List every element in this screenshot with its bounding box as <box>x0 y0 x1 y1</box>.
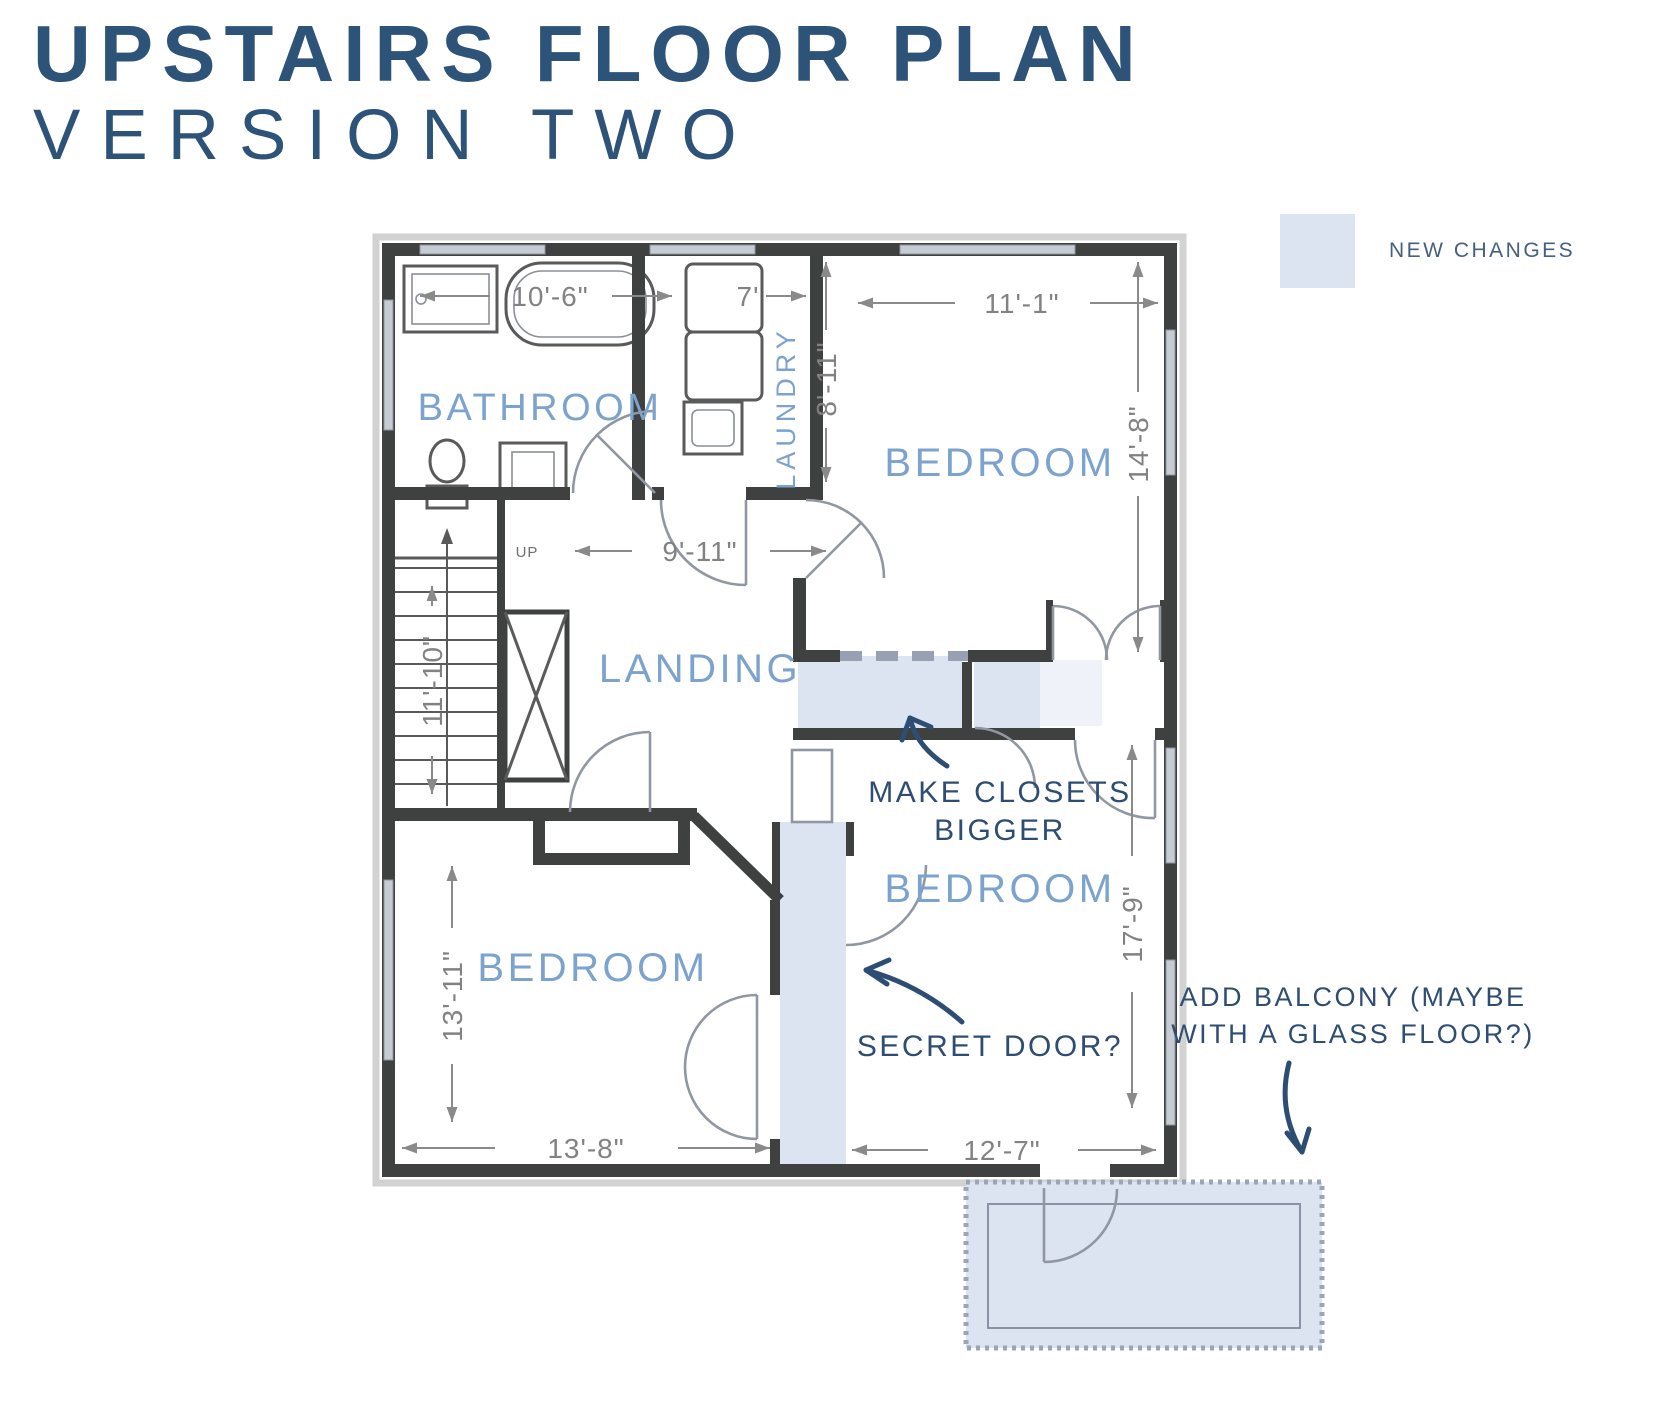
shower-icon <box>404 266 497 332</box>
wall-bath-laundry-divider <box>632 243 645 500</box>
wall-bath-south <box>395 487 570 500</box>
make-closets-note-line1: MAKE CLOSETS <box>868 776 1131 809</box>
wall-passage-left-top <box>772 822 780 902</box>
toilet-icon <box>430 440 464 482</box>
wall-passage-left-bottom <box>770 1139 780 1164</box>
wall-passage-left-mid <box>770 900 780 995</box>
dim-bedroom-tr-width: 11'-1" <box>984 288 1059 319</box>
make-closets-note-line2: BIGGER <box>934 814 1066 847</box>
landing-label: LANDING <box>599 647 801 691</box>
dim-bedroom-bl-depth: 13'-11" <box>437 950 468 1042</box>
dim-bathroom-width: 10'-6" <box>511 281 588 312</box>
bathroom-label: BATHROOM <box>418 387 663 429</box>
wall-passage-right-stub <box>846 822 854 856</box>
wall-landing-closet-right <box>678 821 690 865</box>
floor-plan: UP <box>0 0 1670 1404</box>
highlight-balcony <box>966 1182 1322 1348</box>
dryer-icon <box>686 332 762 400</box>
dim-laundry-width: 7' <box>737 281 760 312</box>
dim-landing-width: 9'-11" <box>662 536 737 567</box>
window <box>384 300 393 430</box>
wall-landing-closet-bottom <box>533 853 690 865</box>
wall-closet-divider <box>962 662 972 728</box>
secret-door-note: SECRET DOOR? <box>857 1030 1123 1063</box>
window <box>650 245 755 254</box>
bedroom-bottom-right-label: BEDROOM <box>884 867 1115 911</box>
window <box>900 245 1075 254</box>
window <box>1166 330 1175 475</box>
wall-outer-bottom-right <box>1110 1164 1177 1177</box>
wall-closet-top-right <box>968 650 1050 662</box>
wall-landing-south <box>395 808 697 821</box>
bedroom-bottom-left-label: BEDROOM <box>477 946 708 990</box>
window <box>384 880 393 1060</box>
highlight-secret-passage <box>780 822 846 1168</box>
dim-laundry-depth: 8'-11" <box>811 341 842 416</box>
wall-closet-bottom <box>793 728 1075 740</box>
add-balcony-note-line2: WITH A GLASS FLOOR?) <box>1171 1019 1535 1049</box>
highlight-closet-2 <box>974 656 1040 728</box>
page: UPSTAIRS FLOOR PLAN VERSION TWO NEW CHAN… <box>0 0 1670 1404</box>
dim-stairwell-depth: 11'-10" <box>417 635 448 727</box>
wall-closet-bottom-stub <box>1155 728 1177 740</box>
wall-outer-bottom-left <box>382 1164 1040 1177</box>
bedroom-top-right-label: BEDROOM <box>884 441 1115 485</box>
dim-bedroom-tr-depth: 14'-8" <box>1123 405 1154 482</box>
stairs-up-label: UP <box>516 544 539 561</box>
secret-door-leaf <box>792 750 832 822</box>
window <box>420 245 545 254</box>
highlight-closet-1 <box>798 656 962 728</box>
dim-bedroom-br-depth: 17'-9" <box>1117 885 1148 962</box>
add-balcony-note-line1: ADD BALCONY (MAYBE <box>1179 982 1526 1012</box>
dim-bedroom-br-width: 12'-7" <box>963 1135 1040 1166</box>
chimney-shaft <box>505 612 567 780</box>
dim-bedroom-bl-width: 13'-8" <box>547 1133 624 1164</box>
window <box>1166 748 1175 863</box>
laundry-label: LAUNDRY <box>771 326 801 490</box>
highlight-closet-wash <box>1040 660 1102 726</box>
